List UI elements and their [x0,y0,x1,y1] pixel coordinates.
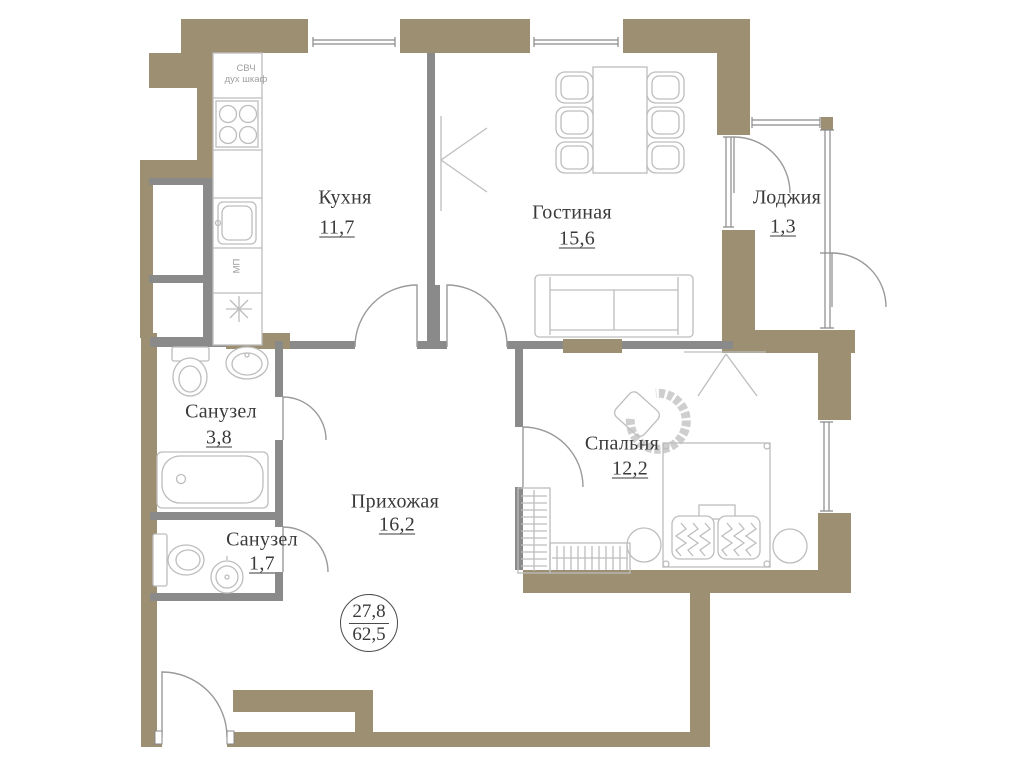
loggia-glazing-top-icon [752,117,820,128]
loggia-inner-door-icon [734,137,790,193]
bed-icon [663,443,770,567]
area-badge: 27,8 62,5 [340,594,398,652]
toilet-icon [172,347,209,396]
appliance-note-line1: СВЧ [236,63,255,74]
washbasin-icon [211,556,243,593]
living-room-door-icon [447,285,507,347]
area-badge-total: 62,5 [352,624,385,645]
bedroom-window-icon [820,422,833,511]
entry-jamb-left [155,731,162,744]
kitchen-door-icon [355,285,417,347]
loggia-outer-door-icon [832,253,886,307]
room-area-bathroom-small: 1,7 [249,553,275,576]
bathroom-large-door-icon [283,397,326,440]
kitchen-counter [213,53,262,345]
room-area-bathroom-large: 3,8 [206,427,232,450]
floor-plan-graphics [0,0,1024,768]
bathtub-icon [157,452,268,508]
entry-jamb-right [227,731,234,744]
dishwasher-label: МП [233,259,244,274]
room-label-loggia: Лоджия [753,187,821,210]
area-badge-living: 27,8 [349,601,388,623]
appliance-note: СВЧ дух шкаф [225,64,268,86]
sofa-icon [535,275,693,337]
room-label-bathroom-large: Санузел [185,401,257,424]
entry-door-icon [162,672,227,737]
kitchen-window-icon [313,37,395,47]
room-label-bedroom: Спальня [585,433,659,456]
dining-table-icon [593,67,647,173]
room-label-bathroom-small: Санузел [226,529,298,552]
bedroom-door-icon [523,427,583,487]
room-area-bedroom: 12,2 [612,458,648,481]
room-label-hallway: Прихожая [351,491,439,514]
ceiling-light-icon [684,352,766,396]
tv-icon [441,116,487,211]
wardrobe-icon [518,488,630,573]
room-area-loggia: 1,3 [770,216,796,239]
room-area-kitchen: 11,7 [319,217,354,240]
toilet-icon [153,534,204,586]
room-area-living-room: 15,6 [559,228,595,251]
appliance-note-line2: дух шкаф [225,74,268,85]
room-label-living-room: Гостиная [532,202,612,225]
stove-icon [216,101,258,147]
room-area-hallway: 16,2 [379,514,415,537]
washbasin-icon [226,347,268,379]
kitchen-sink-icon [216,202,257,244]
loggia-balcony-block-icon [723,137,734,227]
room-label-kitchen: Кухня [318,187,371,210]
floor-plan: Кухня 11,7 Гостиная 15,6 Лоджия 1,3 Сану… [0,0,1024,768]
living-room-window-icon [534,37,618,47]
